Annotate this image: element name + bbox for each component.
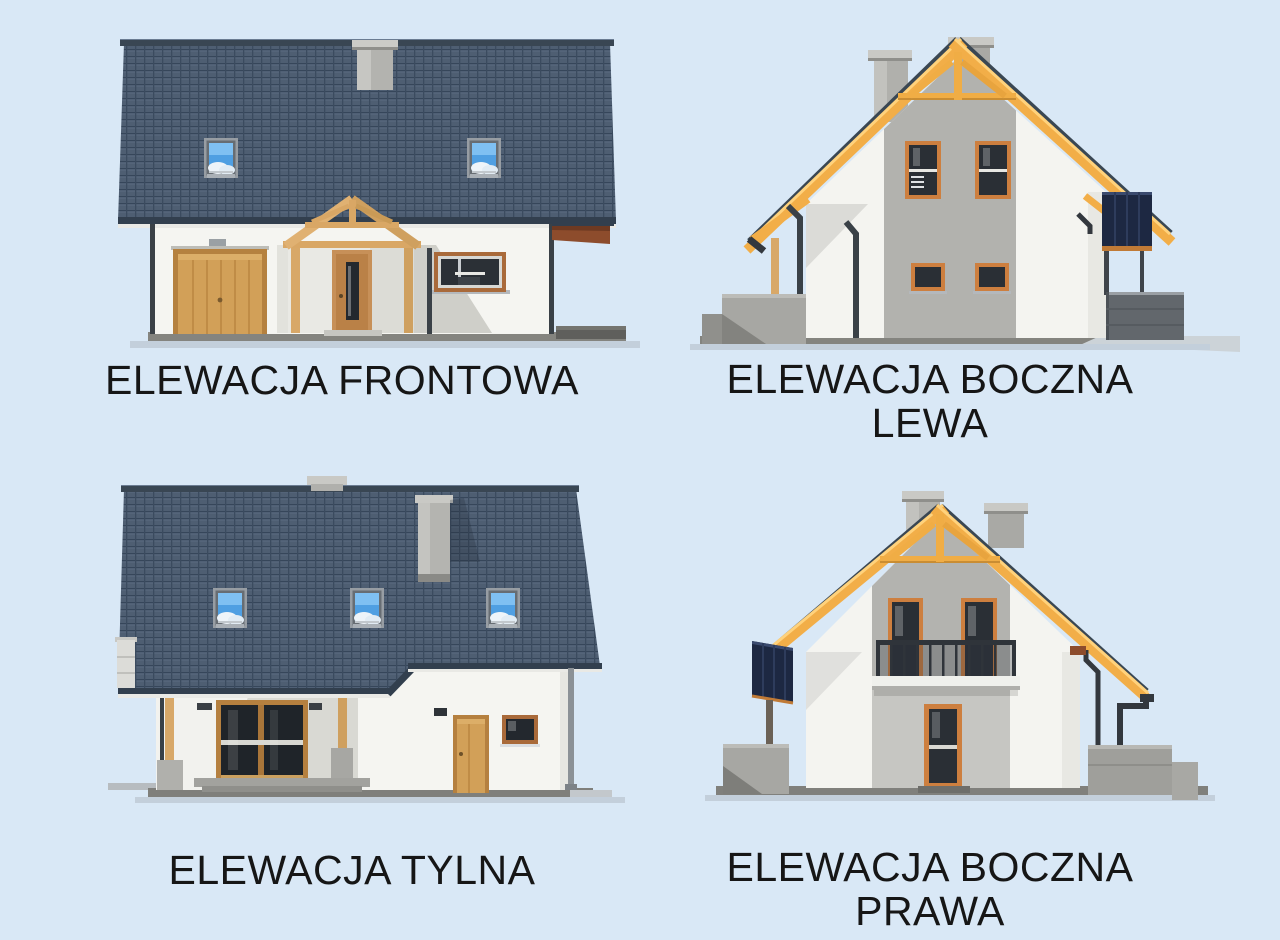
- elevations-sheet: ELEWACJA FRONTOWA ELEWACJA BOCZNA LEWA E…: [0, 0, 1280, 940]
- chimney-small: [307, 476, 347, 491]
- garage-door: [171, 246, 269, 334]
- terrace-steps: [194, 778, 370, 792]
- kitchen-window: [432, 252, 510, 294]
- rear-elevation-drawing: [95, 465, 645, 810]
- back-door: [453, 715, 489, 793]
- patio-glazing: [216, 700, 308, 788]
- upper-window: [905, 141, 941, 199]
- chimney: [352, 40, 398, 90]
- left-side-elevation-label-line2: LEWA: [655, 401, 1205, 445]
- side-porch-overhang: [552, 221, 614, 244]
- soffit-vent: [1070, 646, 1086, 655]
- balcony-railing: [876, 640, 1016, 678]
- lower-window: [973, 263, 1011, 294]
- rear-elevation-label: ELEWACJA TYLNA: [77, 848, 627, 892]
- right-side-elevation-label-line1: ELEWACJA BOCZNA: [655, 845, 1205, 889]
- lower-window: [909, 263, 947, 294]
- upper-window: [975, 141, 1011, 199]
- left-side-elevation-label: ELEWACJA BOCZNA LEWA: [655, 357, 1205, 445]
- right-side-elevation-label: ELEWACJA BOCZNA PRAWA: [655, 845, 1205, 933]
- wall-vent: [209, 239, 226, 246]
- left-side-elevation-drawing: [680, 20, 1240, 360]
- fence-walls: [1088, 745, 1198, 800]
- front-elevation-drawing: [95, 25, 645, 355]
- front-elevation-label: ELEWACJA FRONTOWA: [67, 358, 617, 402]
- concrete-blocks: [723, 744, 789, 794]
- fence-panel: [1106, 292, 1184, 340]
- right-side-elevation-drawing: [690, 480, 1220, 810]
- roof-edge-vent: [115, 637, 137, 688]
- left-side-elevation-label-line1: ELEWACJA BOCZNA: [655, 357, 1205, 401]
- balcony-slab: [872, 676, 1020, 696]
- right-side-elevation-label-line2: PRAWA: [655, 889, 1205, 933]
- small-window: [500, 715, 540, 747]
- concrete-blocks: [702, 294, 806, 344]
